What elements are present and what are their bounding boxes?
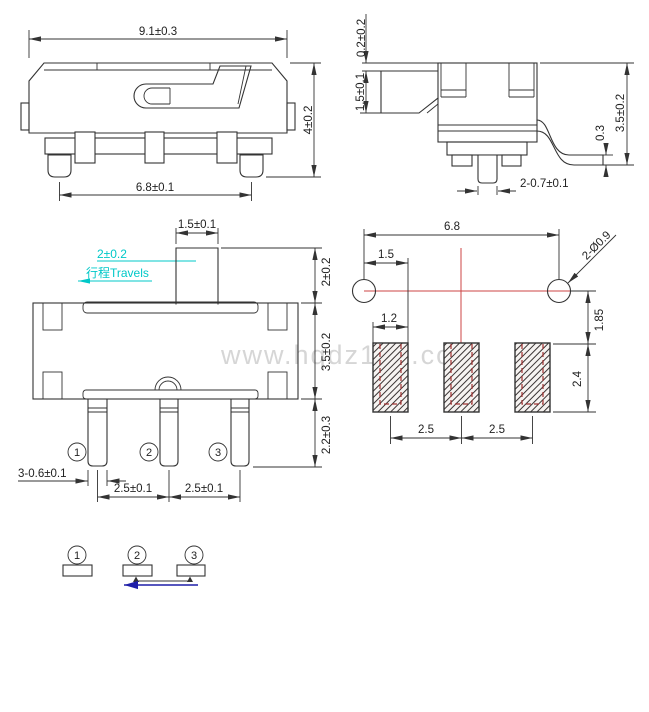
side-body-width-label: 9.1±0.3 — [139, 26, 177, 38]
pin-number: 1 — [74, 550, 80, 562]
end-view: 0.2±0.2 1.5±0.1 3.5±0.2 0.3 2-0.7±0.1 — [355, 14, 634, 195]
right-foot — [240, 155, 263, 177]
pcb-pad-height-label: 2.4 — [572, 370, 584, 387]
side-body-height-label: 4±0.2 — [303, 106, 315, 135]
pin-number: 2 — [134, 550, 140, 562]
pcb-pads — [373, 343, 550, 412]
end-knob — [381, 71, 438, 113]
travel-text-label: 行程Travels — [86, 265, 149, 280]
pcb-pitch-left-label: 2.5 — [418, 424, 434, 436]
pcb-pad-width-label: 1.2 — [381, 313, 397, 325]
pcb-hole-to-pad-label: 1.5 — [378, 249, 394, 261]
front-pitch-left-label: 2.5±0.1 — [114, 483, 152, 495]
front-knob — [176, 248, 218, 304]
end-knob-height-label: 1.5±0.1 — [355, 73, 367, 111]
circuit-schematic: 1 2 3 — [63, 546, 205, 585]
bent-leg — [537, 120, 603, 155]
side-view: 9.1±0.3 4±0.2 6.8±0.1 — [21, 26, 321, 201]
side-feet-span-label: 6.8±0.1 — [136, 182, 174, 194]
pad-2 — [444, 343, 479, 412]
pcb-hole-span-label: 6.8 — [444, 221, 460, 233]
pin-number: 2 — [146, 447, 152, 459]
end-foot-thickness-label: 0.3 — [595, 125, 607, 141]
pcb-hole-size-label: 2-Ø0.9 — [580, 229, 613, 262]
pin-number: 3 — [215, 447, 221, 459]
pin-2 — [160, 400, 178, 466]
pcb-vert-offset-label: 1.85 — [594, 309, 606, 331]
front-knob-height-label: 2±0.2 — [321, 258, 333, 287]
end-overall-height-label: 3.5±0.2 — [615, 94, 627, 132]
end-center-pin — [478, 155, 497, 183]
travel-dim-label: 2±0.2 — [97, 247, 127, 261]
pcb-pitch-right-label: 2.5 — [489, 424, 505, 436]
pin-number: 1 — [74, 447, 80, 459]
end-cover-gap-label: 0.2±0.2 — [356, 19, 368, 57]
end-pin-width-label: 2-0.7±0.1 — [520, 178, 569, 190]
contact-2 — [123, 565, 152, 576]
contact-3 — [177, 565, 205, 576]
pin-1 — [88, 400, 107, 466]
end-view-body — [381, 63, 603, 183]
pad-3 — [515, 343, 550, 412]
front-pin-width-label: 3-0.6±0.1 — [18, 468, 67, 480]
watermark-text: www.hqdz123.com — [220, 340, 478, 370]
front-body-height-label: 3.5±0.2 — [321, 333, 333, 371]
side-view-body — [21, 63, 295, 177]
top-rail — [83, 302, 258, 313]
left-foot — [48, 155, 71, 177]
pin-3 — [231, 400, 249, 466]
front-pitch-right-label: 2.5±0.1 — [185, 483, 223, 495]
slider-lever-outline — [134, 66, 251, 108]
pad-1 — [373, 343, 408, 412]
pcb-footprint-view: 6.8 1.5 1.2 2-Ø0.9 1.85 2.4 2.5 2.5 — [353, 221, 617, 444]
side-view-dimension-lines — [29, 30, 321, 201]
pin-number: 3 — [191, 550, 197, 562]
front-pin-length-label: 2.2±0.3 — [321, 416, 333, 454]
bottom-rail — [83, 390, 258, 399]
contact-1 — [63, 565, 92, 576]
detent-bump — [155, 377, 181, 390]
technical-drawing-canvas: www.hqdz123.com 9.1±0.3 4±0.2 6.8±0.1 — [0, 0, 649, 707]
front-knob-width-label: 1.5±0.1 — [178, 219, 216, 231]
